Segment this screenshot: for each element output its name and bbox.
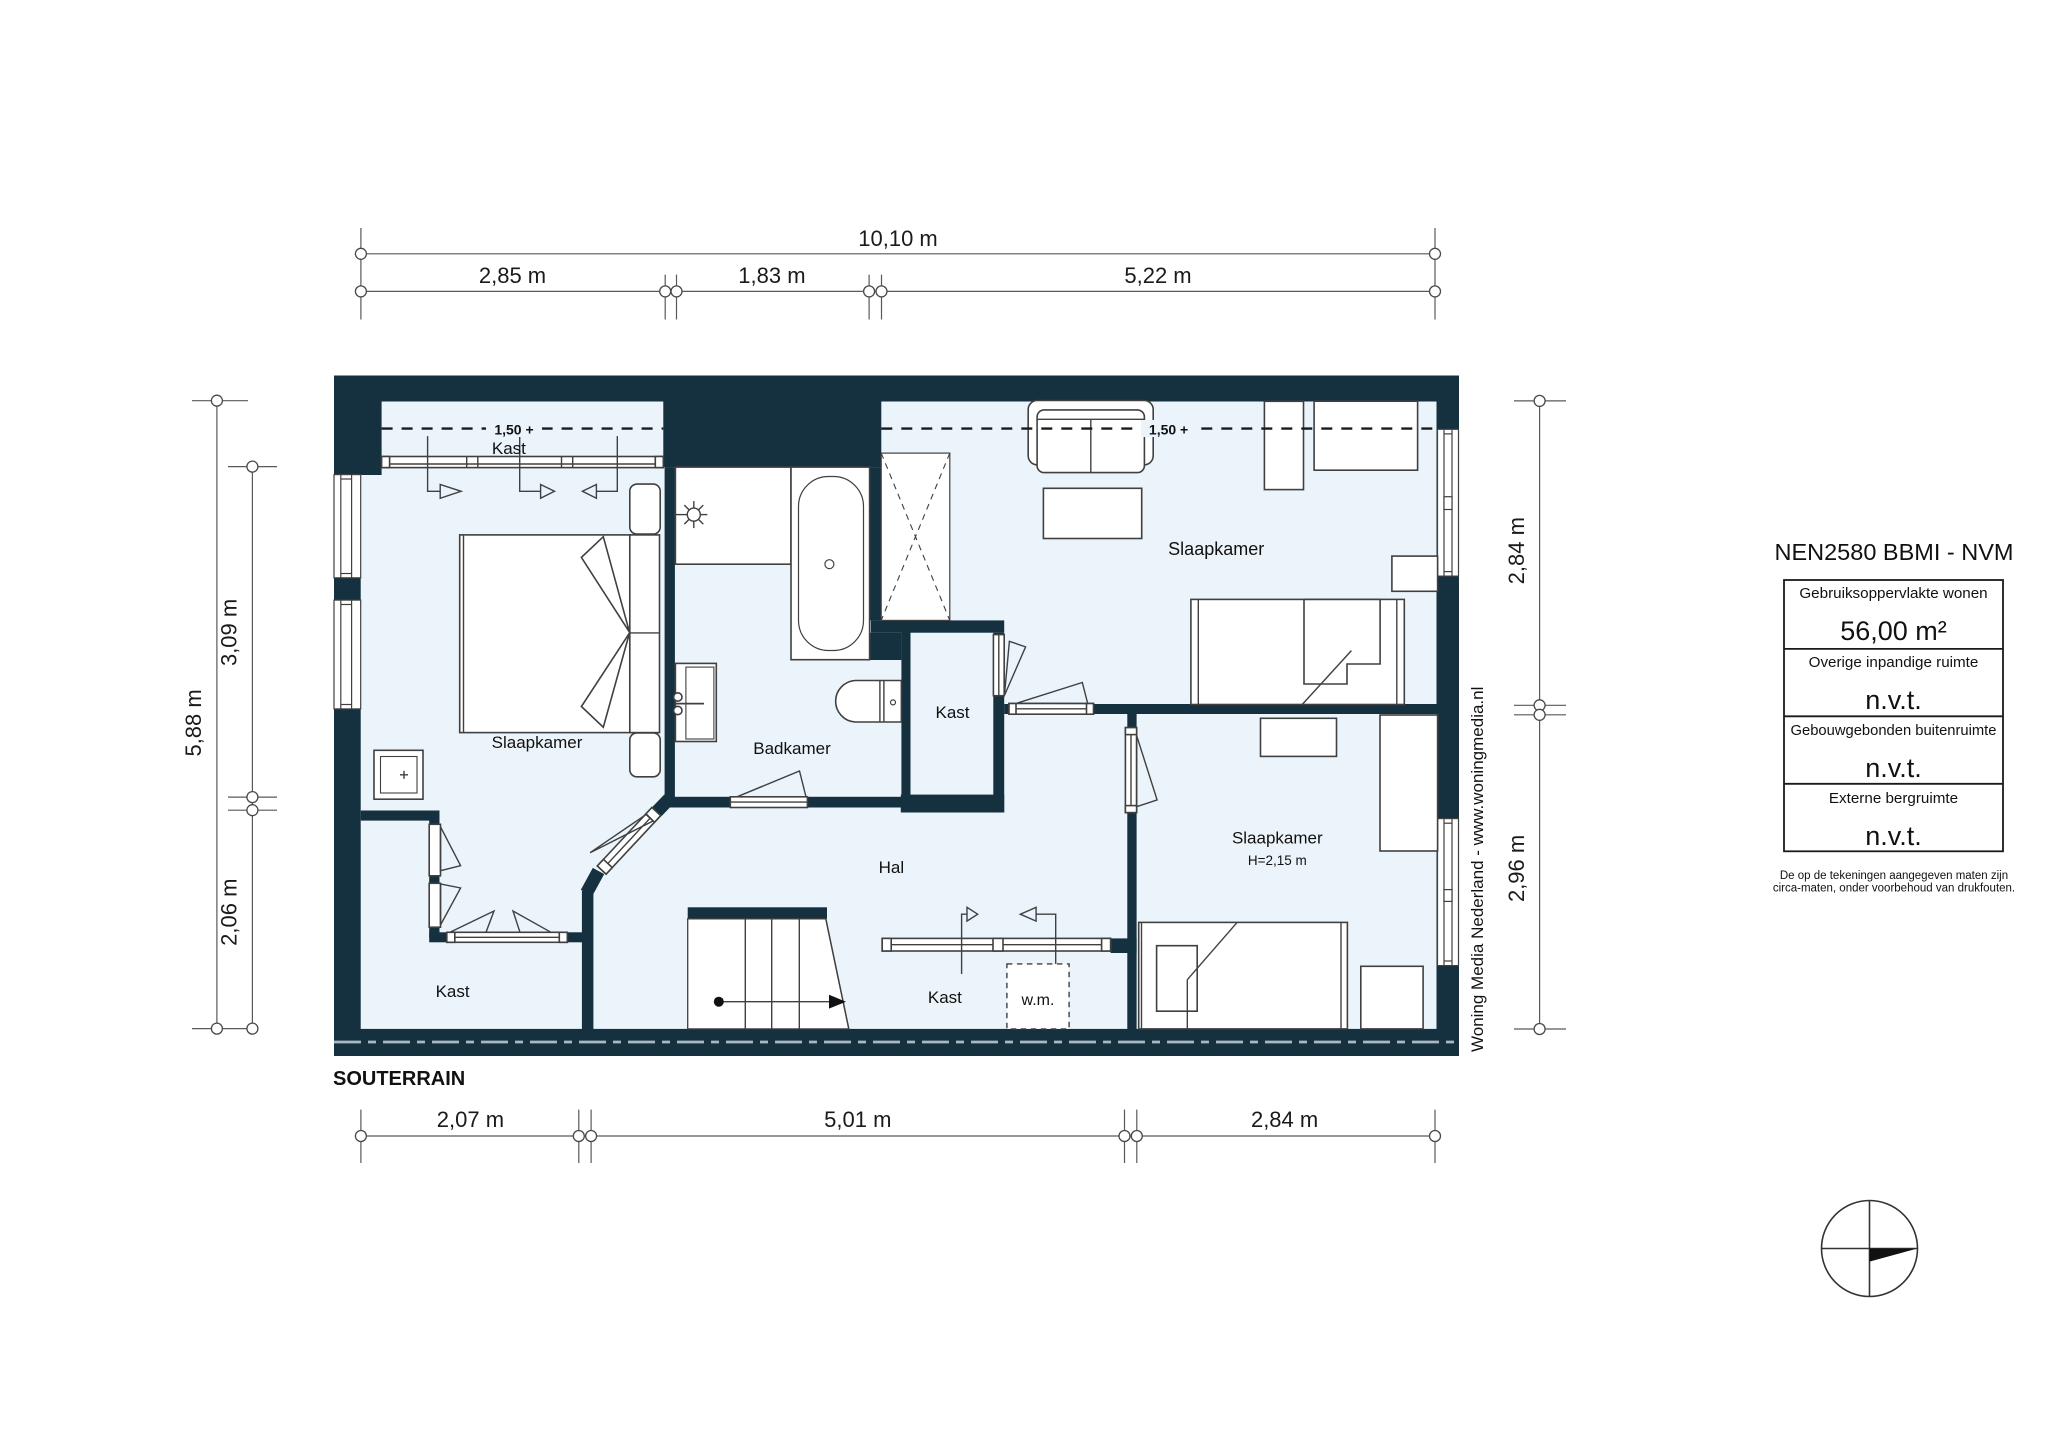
svg-text:Externe bergruimte: Externe bergruimte (1829, 790, 1958, 807)
svg-text:Slaapkamer: Slaapkamer (1168, 539, 1264, 559)
svg-text:2,96 m: 2,96 m (1504, 835, 1529, 902)
svg-text:NEN2580 BBMI - NVM: NEN2580 BBMI - NVM (1775, 539, 2014, 565)
svg-text:5,01 m: 5,01 m (824, 1107, 891, 1132)
svg-text:Slaapkamer: Slaapkamer (492, 733, 583, 752)
svg-text:Slaapkamer: Slaapkamer (1232, 829, 1323, 848)
svg-text:2,84 m: 2,84 m (1251, 1107, 1318, 1132)
svg-text:2,07 m: 2,07 m (437, 1107, 504, 1132)
svg-text:H=2,15 m: H=2,15 m (1248, 853, 1307, 868)
svg-text:10,10 m: 10,10 m (858, 226, 938, 251)
svg-text:2,85 m: 2,85 m (479, 263, 546, 288)
svg-text:2,84 m: 2,84 m (1504, 517, 1529, 584)
svg-text:circa-maten, onder voorbehoud: circa-maten, onder voorbehoud van drukfo… (1773, 883, 2015, 895)
svg-text:Kast: Kast (935, 703, 969, 722)
svg-text:Badkamer: Badkamer (753, 739, 831, 758)
svg-text:Gebouwgebonden buitenruimte: Gebouwgebonden buitenruimte (1791, 722, 1997, 739)
svg-text:1,83 m: 1,83 m (738, 263, 805, 288)
svg-text:Woning Media Nederland - www.w: Woning Media Nederland - www.woningmedia… (1468, 687, 1487, 1052)
svg-text:3,09 m: 3,09 m (217, 599, 242, 666)
svg-text:1,50 +: 1,50 + (494, 422, 533, 438)
svg-text:n.v.t.: n.v.t. (1865, 821, 1922, 851)
svg-text:w.m.: w.m. (1021, 992, 1055, 1009)
svg-text:De op de tekeningen aangegeven: De op de tekeningen aangegeven maten zij… (1780, 870, 2008, 882)
svg-text:1,50 +: 1,50 + (1149, 422, 1188, 438)
svg-text:Kast: Kast (928, 988, 962, 1007)
svg-text:Overige inpandige ruimte: Overige inpandige ruimte (1809, 654, 1979, 671)
svg-text:SOUTERRAIN: SOUTERRAIN (333, 1068, 465, 1090)
svg-text:Gebruiksoppervlakte wonen: Gebruiksoppervlakte wonen (1799, 585, 1987, 602)
svg-text:Kast: Kast (492, 439, 526, 458)
svg-text:n.v.t.: n.v.t. (1865, 753, 1922, 783)
svg-text:5,88 m: 5,88 m (181, 689, 206, 756)
svg-text:Kast: Kast (436, 982, 470, 1001)
svg-text:56,00 m²: 56,00 m² (1840, 616, 1947, 646)
svg-text:2,06 m: 2,06 m (217, 879, 242, 946)
svg-text:Hal: Hal (879, 858, 905, 877)
svg-text:n.v.t.: n.v.t. (1865, 685, 1922, 715)
svg-text:5,22 m: 5,22 m (1124, 263, 1191, 288)
